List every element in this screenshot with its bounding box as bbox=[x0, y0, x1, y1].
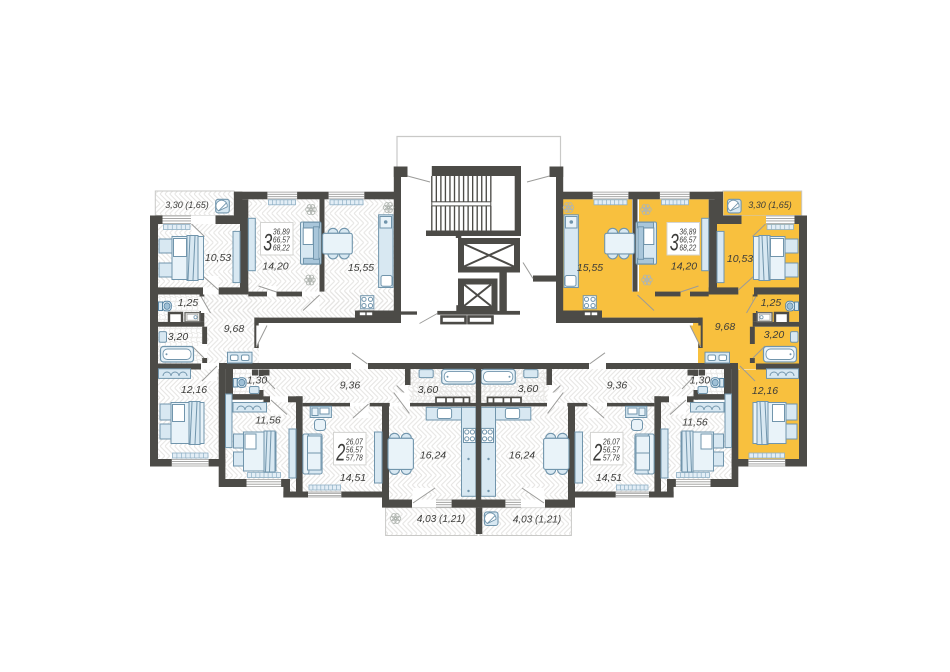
svg-text:3,60: 3,60 bbox=[518, 383, 539, 395]
svg-text:14,20: 14,20 bbox=[262, 261, 288, 273]
svg-text:11,56: 11,56 bbox=[682, 417, 708, 429]
svg-text:15,55: 15,55 bbox=[348, 262, 374, 274]
svg-text:3,20: 3,20 bbox=[168, 331, 189, 343]
svg-text:57,78: 57,78 bbox=[346, 453, 363, 463]
svg-text:3: 3 bbox=[670, 230, 679, 257]
svg-text:2: 2 bbox=[336, 439, 346, 466]
svg-text:1,25: 1,25 bbox=[761, 297, 782, 309]
svg-text:14,51: 14,51 bbox=[596, 472, 622, 484]
svg-text:68,22: 68,22 bbox=[273, 243, 290, 253]
svg-text:11,56: 11,56 bbox=[255, 415, 281, 427]
svg-text:3,30 (1,65): 3,30 (1,65) bbox=[165, 200, 209, 210]
svg-text:10,53: 10,53 bbox=[727, 253, 753, 265]
svg-text:1,30: 1,30 bbox=[247, 375, 268, 387]
svg-text:3,20: 3,20 bbox=[764, 329, 785, 341]
svg-text:4,03 (1,21): 4,03 (1,21) bbox=[513, 515, 561, 526]
svg-text:10,53: 10,53 bbox=[205, 252, 231, 264]
svg-text:16,24: 16,24 bbox=[509, 450, 535, 462]
svg-text:4,03 (1,21): 4,03 (1,21) bbox=[417, 514, 465, 525]
svg-text:12,16: 12,16 bbox=[181, 384, 207, 396]
svg-text:14,51: 14,51 bbox=[340, 472, 366, 484]
svg-text:12,16: 12,16 bbox=[752, 385, 778, 397]
svg-text:57,78: 57,78 bbox=[603, 453, 620, 463]
svg-text:2: 2 bbox=[593, 439, 603, 466]
svg-text:3,60: 3,60 bbox=[418, 384, 439, 396]
svg-text:3,30 (1,65): 3,30 (1,65) bbox=[748, 200, 792, 210]
svg-text:1,25: 1,25 bbox=[178, 297, 199, 309]
svg-text:9,36: 9,36 bbox=[340, 380, 361, 392]
svg-text:9,36: 9,36 bbox=[607, 380, 628, 392]
svg-text:14,20: 14,20 bbox=[671, 261, 697, 273]
svg-text:9,68: 9,68 bbox=[224, 323, 245, 335]
svg-text:3: 3 bbox=[263, 230, 272, 257]
svg-text:1,30: 1,30 bbox=[690, 375, 711, 387]
svg-text:15,55: 15,55 bbox=[577, 262, 603, 274]
svg-text:9,68: 9,68 bbox=[715, 321, 736, 333]
svg-text:16,24: 16,24 bbox=[420, 450, 446, 462]
svg-text:68,22: 68,22 bbox=[679, 243, 696, 253]
